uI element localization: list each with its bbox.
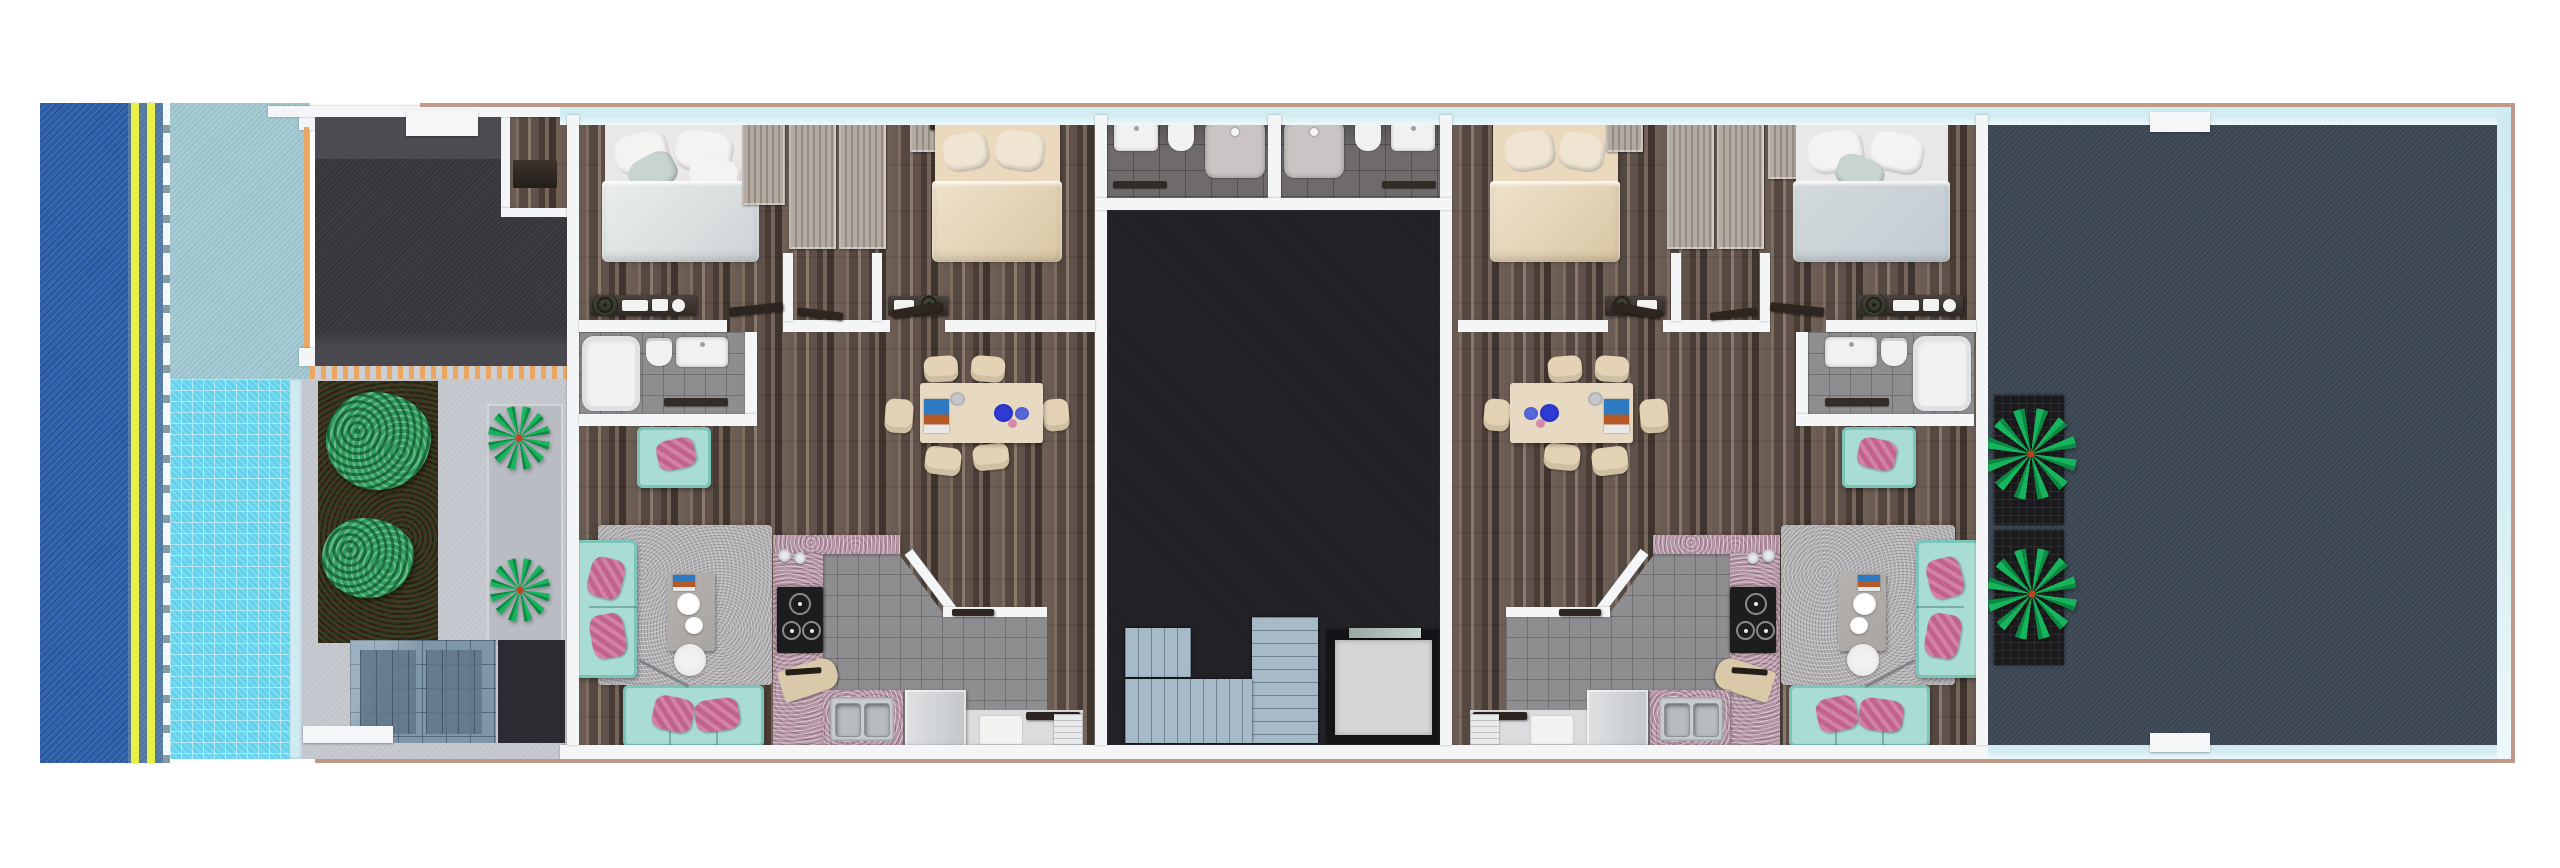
left-bed1-dresser [590,295,696,316]
bottle [785,667,821,675]
terrace-door-threshold-top [2150,112,2210,132]
left-wall-segment [579,320,727,332]
core-bath-bottom-wall [1095,198,1452,210]
left-wall-segment [783,320,890,332]
pink-pillow [585,554,628,601]
dresser-plant [1861,293,1887,317]
plan-outline-top [420,103,2513,107]
right-closet-door-1 [1667,121,1714,249]
lane-line-left [131,103,139,763]
bottle [1731,667,1767,675]
dresser-plant [592,293,618,317]
core-bath-left-shower [1205,120,1265,178]
dresser-tray [622,300,648,311]
dining-chair [970,355,1006,384]
terrace-door-threshold-bottom [2150,733,2210,752]
right-armchair [1842,427,1916,488]
right-entry-mat [1531,716,1573,744]
stair-upper-flight [1125,628,1191,677]
pink-pillow [1922,611,1963,660]
gray-plate [950,392,965,406]
dining-chair [1042,398,1071,432]
right-bed1 [1493,121,1618,260]
left-sofa-horizontal [623,685,764,747]
duvet [1793,181,1950,262]
right-ensuite-bottom-wall [1796,414,1974,426]
orange-deck-walkway [310,366,567,379]
pink-dish [1536,419,1545,428]
left-bed1 [605,121,757,260]
right-entry-screen [1471,714,1499,745]
blue-plate-small [1524,407,1538,420]
pink-pillow [654,435,697,472]
plan-outline-bottom [315,759,2511,763]
sink-basin [835,703,861,737]
right-coffee-table [1838,573,1886,651]
dark-vent-pad [498,640,565,743]
pillow [1556,129,1608,174]
right-ensuite-towel-bar [1825,398,1889,406]
left-closet-door-1 [789,121,836,249]
left-counter-top [773,535,900,554]
pillow [992,128,1047,175]
left-ensuite-wall [745,332,757,426]
building-terrace-wall [1976,115,1988,745]
left-dining-table [920,383,1043,443]
right-kitchen-sink [1659,697,1723,741]
right-vestibule-wall [1760,253,1770,321]
left-ensuite-bottom-wall [579,414,757,426]
left-entry-screen [1054,714,1082,745]
right-ensuite-sink [1825,337,1877,367]
porch-wall-horizontal [501,208,567,217]
left-stove [777,587,823,653]
left-ensuite-toilet [646,338,672,366]
stair-lower-flight [1125,679,1252,743]
right-sofa-vertical [1916,540,1980,678]
elevator-shaft [1327,630,1440,743]
sofa-seam [1916,606,1964,608]
kitchen-jar [778,549,791,562]
table-magazine [673,575,695,591]
floor-plan-render [0,0,2560,868]
magazine [924,399,949,433]
burner [1736,621,1755,640]
pillow [1502,128,1557,175]
pad-gate-tab [406,110,478,136]
pink-pillow [650,693,696,735]
porch-bench [513,160,557,188]
left-ensuite-towel-bar [664,398,728,406]
elevator-door [1349,628,1421,638]
right-closet-door-2 [1717,121,1764,249]
floor-lamp-shade [674,644,706,676]
terrace-bottom-glazing [1988,745,2497,759]
left-closet-door-2 [839,121,886,249]
dining-chair [1590,445,1629,477]
building-left-wall [567,115,579,745]
right-stove [1730,587,1776,653]
core-bath-divider-wall [1268,115,1281,210]
left-ensuite-bathtub [582,336,640,411]
core-bath-right-towel-bar [1382,181,1436,188]
right-vestibule-wall [1671,253,1681,321]
round-tray [685,617,703,634]
garden-step [303,726,393,743]
right-wall-segment [1663,320,1770,332]
gray-plate [1588,392,1603,406]
blue-plate-small [1015,407,1029,420]
table-magazine [1858,575,1880,591]
core-bath-left-toilet [1168,121,1194,151]
core-bath-left-sink [1114,121,1158,151]
core-bath-left-towel-bar [1113,181,1167,188]
left-coffee-table [667,573,715,651]
left-kitchen-door [952,609,994,616]
sink-basin [1664,703,1690,737]
left-fridge [905,690,966,747]
burner [782,621,801,640]
right-sofa-horizontal [1789,685,1930,747]
burner [789,593,811,615]
core-bath-right-toilet [1355,121,1381,151]
duvet [602,181,759,262]
terrace-palm-1 [1985,408,2077,500]
right-ensuite-wall [1796,332,1808,426]
right-wall-segment [1826,320,1976,332]
elevator-cab [1335,640,1432,735]
skylight-panel-2 [426,650,482,734]
burner [1756,621,1775,640]
left-kitchen-sink [830,697,894,741]
stair-side-flight [1252,617,1318,743]
building-bottom-wall [560,745,1988,759]
round-tray [1850,617,1868,634]
swimming-pool [170,379,290,759]
floor-lamp-shade [1847,644,1879,676]
dining-chair [1547,355,1583,384]
pink-pillow [1855,435,1898,472]
right-fridge [1587,690,1648,747]
road-curb [163,103,170,763]
pink-dish [1008,419,1017,428]
dining-chair [1639,398,1669,434]
dining-chair [884,398,914,434]
dresser-box [652,299,668,311]
left-vestibule-wall [783,253,793,321]
pink-pillow [1857,696,1905,734]
skylight-panel-1 [360,650,416,734]
ocean-water [40,103,128,763]
left-bed1-wardrobe [742,121,785,205]
right-wall-segment [1458,320,1608,332]
left-vestibule-wall [872,253,882,321]
left-entry-mat [980,716,1022,744]
duvet [1490,181,1620,262]
sofa-seam [589,606,637,608]
dining-chair [1543,442,1582,472]
dining-chair [923,355,959,383]
kitchen-jar [1747,552,1759,564]
left-bed2 [935,121,1060,260]
pool-deck [170,103,310,379]
dining-chair [972,442,1011,472]
right-bed1-wardrobe [1606,121,1643,152]
dining-chair [1483,398,1512,432]
fence-post-bottom [299,348,315,366]
pillow [940,129,992,174]
right-counter-top [1653,535,1780,554]
porch-wall-vertical [501,117,510,213]
left-ensuite-sink [676,337,728,367]
dining-chair [923,445,962,477]
round-tray [1853,593,1876,615]
dresser-dish [672,299,685,312]
patio-palm-2 [490,558,550,622]
right-kitchen-door [1559,609,1601,616]
left-wall-segment [945,320,1095,332]
left-sofa-vertical [573,540,637,678]
pink-pillow [693,696,741,734]
pink-pillow [587,611,628,660]
dresser-tray [1893,300,1919,311]
pink-pillow [1814,693,1860,735]
dresser-dish [1943,299,1956,312]
burner [1745,593,1767,615]
facade-glazing-right [2497,107,2511,759]
core-bath-right-shower [1284,120,1344,178]
kitchen-jar [1762,549,1775,562]
orange-fence [304,127,309,363]
terrace-palm-2 [1987,548,2077,640]
right-ensuite-toilet [1881,338,1907,366]
right-bed2-dresser [1857,295,1963,316]
kitchen-jar [794,552,806,564]
right-dining-table [1510,383,1633,443]
dining-chair [1594,355,1630,383]
sink-basin [864,703,890,737]
burner [802,621,821,640]
left-armchair [637,427,711,488]
plan-outline-right [2511,103,2515,763]
lane-line-right [147,103,155,763]
duvet [932,181,1062,262]
right-ensuite-bathtub [1913,336,1971,411]
core-bath-right-sink [1391,121,1435,151]
pink-pillow [1924,554,1967,601]
round-tray [677,593,700,615]
dresser-box [1923,299,1939,311]
magazine [1604,399,1629,433]
patio-palm-1 [488,406,550,470]
sink-basin [1693,703,1719,737]
right-bed2 [1796,121,1948,260]
